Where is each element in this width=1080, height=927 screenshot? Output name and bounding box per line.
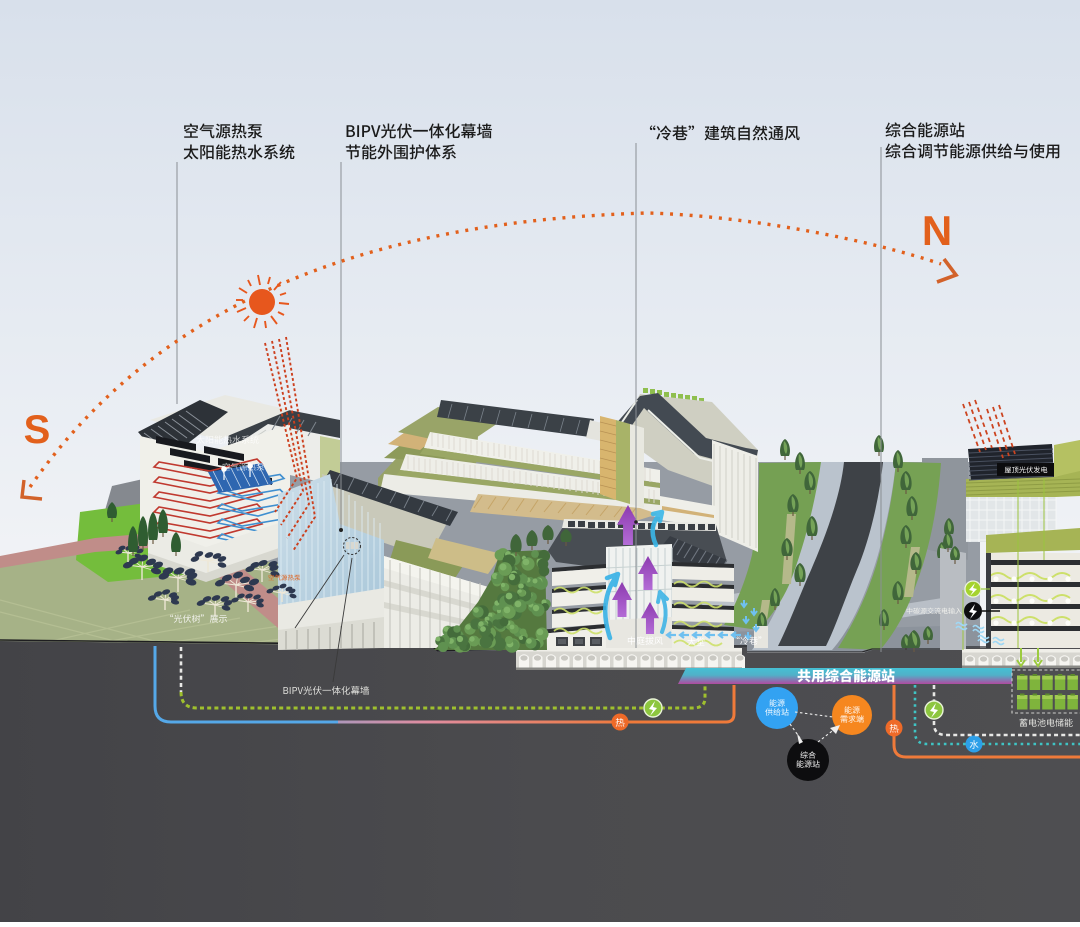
svg-text:N: N — [922, 207, 952, 254]
svg-text:S: S — [24, 408, 51, 452]
